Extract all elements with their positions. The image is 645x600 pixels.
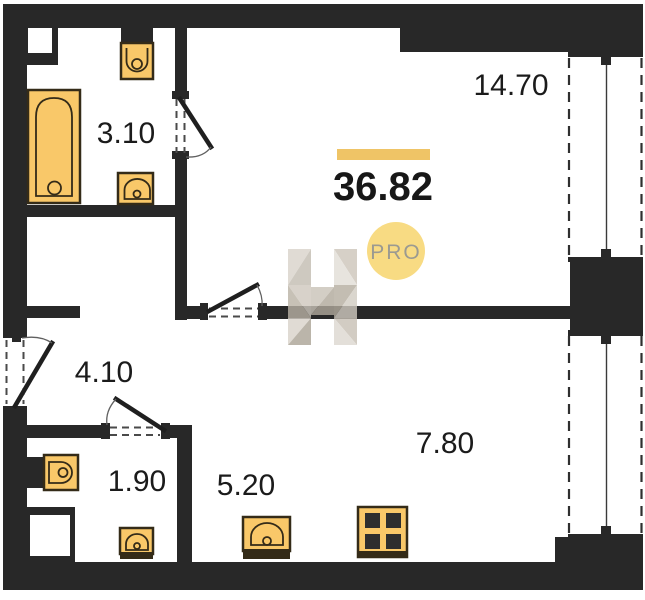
- wall-segment: [400, 4, 643, 52]
- wc-area-label: 1.90: [108, 465, 166, 498]
- stove: [358, 507, 407, 557]
- floor-plan: PRO 36.82 3.10 14.70 4.10 1.90 5.20 7.80: [0, 0, 645, 600]
- window-frame-bar: [568, 330, 643, 336]
- h-pro-watermark-logo: [288, 249, 357, 345]
- entrance-door-leaf: [15, 343, 52, 406]
- sink: [120, 528, 153, 559]
- wall-segment: [27, 306, 80, 318]
- door-hinge-block: [12, 333, 21, 342]
- window-post: [601, 249, 611, 257]
- kitchen-niche-area-label: 5.20: [217, 469, 275, 502]
- total-area-label: 36.82: [333, 165, 433, 209]
- kitchen-sink: [243, 517, 290, 559]
- wall-segment: [177, 438, 192, 562]
- door-swing-arc: [22, 337, 52, 343]
- wall-segment: [3, 562, 555, 590]
- wall-segment: [175, 159, 187, 320]
- stove-base: [358, 551, 407, 557]
- bathtub: [28, 90, 80, 203]
- wall-segment: [3, 4, 403, 28]
- door-swing-arc: [186, 147, 211, 157]
- door-jamb: [172, 151, 189, 159]
- bathroom-area-label: 3.10: [97, 117, 155, 150]
- stove-burner: [386, 513, 401, 528]
- pro-badge-label: PRO: [370, 241, 422, 264]
- window-frame-bar: [568, 257, 643, 262]
- toilet-tank: [27, 457, 45, 488]
- toilet: [27, 455, 78, 490]
- stove-burner: [365, 534, 380, 549]
- sink-base: [120, 552, 153, 559]
- stove-burner: [365, 513, 380, 528]
- room-area-labels: 3.10 14.70 4.10 1.90 5.20 7.80: [75, 69, 549, 502]
- window-frame-bar: [568, 52, 643, 57]
- toilet: [121, 43, 153, 79]
- window-post: [601, 57, 611, 65]
- balcony-pier: [570, 262, 643, 330]
- wall-segment: [175, 28, 187, 93]
- sink: [118, 173, 153, 204]
- door-swing-arc: [107, 399, 116, 425]
- pro-badge: PRO: [367, 222, 425, 280]
- duct-shaft-opening: [28, 28, 52, 53]
- wall-segment: [27, 205, 187, 217]
- sink-base: [243, 549, 290, 559]
- window-post: [601, 526, 611, 534]
- living-room-area-label: 14.70: [473, 69, 548, 102]
- door-jamb: [101, 423, 110, 439]
- door-swing-arc: [257, 285, 262, 306]
- total-area-accent-bar: [337, 149, 430, 160]
- stove-burner: [386, 534, 401, 549]
- wall-segment: [555, 537, 643, 590]
- wc-door-leaf: [116, 399, 164, 430]
- hallway-area-label: 4.10: [75, 356, 133, 389]
- window-frame-bar: [568, 534, 643, 539]
- kitchen-area-label: 7.80: [416, 427, 474, 460]
- living-room-door-leaf: [209, 285, 257, 311]
- floor-plan-drawing: PRO 36.82 3.10 14.70 4.10 1.90 5.20 7.80: [0, 0, 645, 600]
- window-post: [601, 336, 611, 344]
- duct-shaft-opening: [30, 515, 70, 556]
- wall-segment: [27, 425, 103, 438]
